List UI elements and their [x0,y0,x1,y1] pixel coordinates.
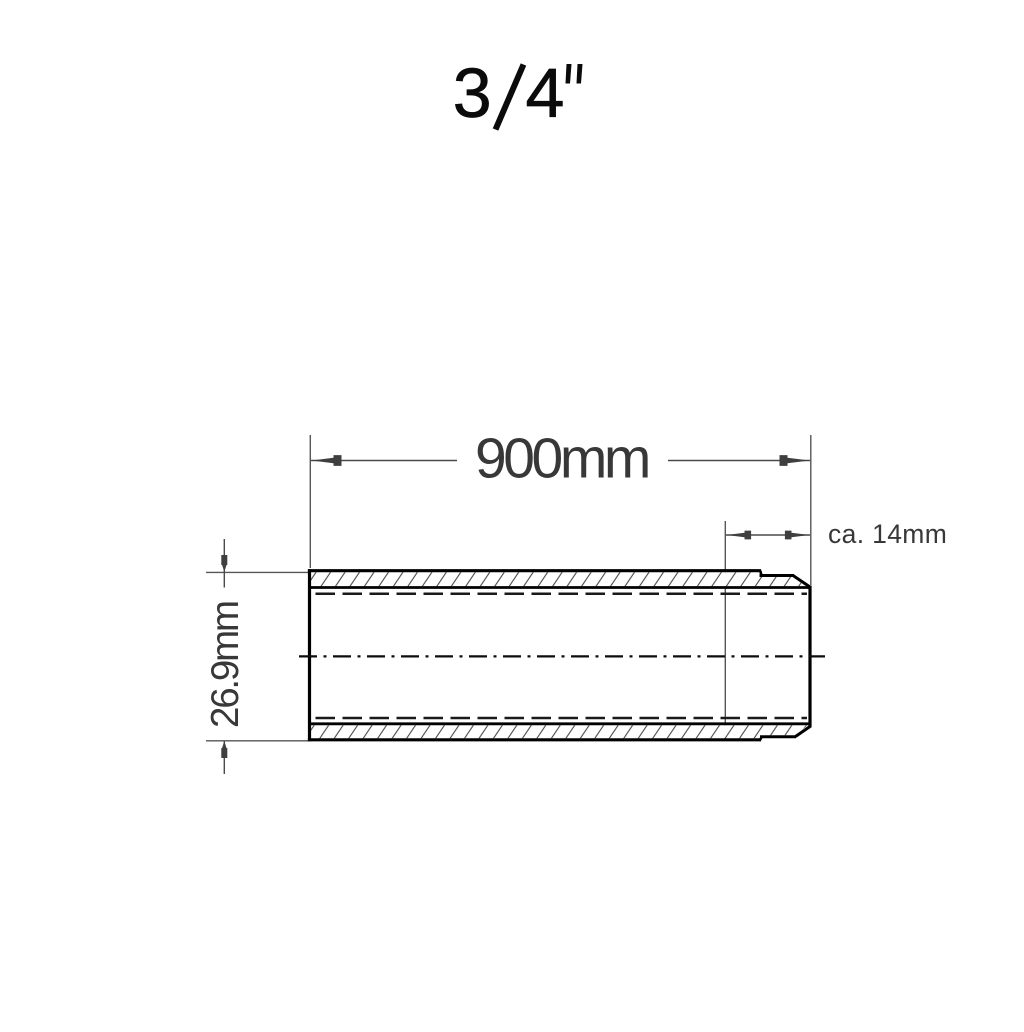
svg-text:26.9mm: 26.9mm [204,602,247,728]
svg-text:ca. 14mm: ca. 14mm [828,519,947,549]
svg-text:900mm: 900mm [475,427,648,491]
svg-text:3: 3 [453,54,492,132]
svg-text:4: 4 [526,54,565,132]
